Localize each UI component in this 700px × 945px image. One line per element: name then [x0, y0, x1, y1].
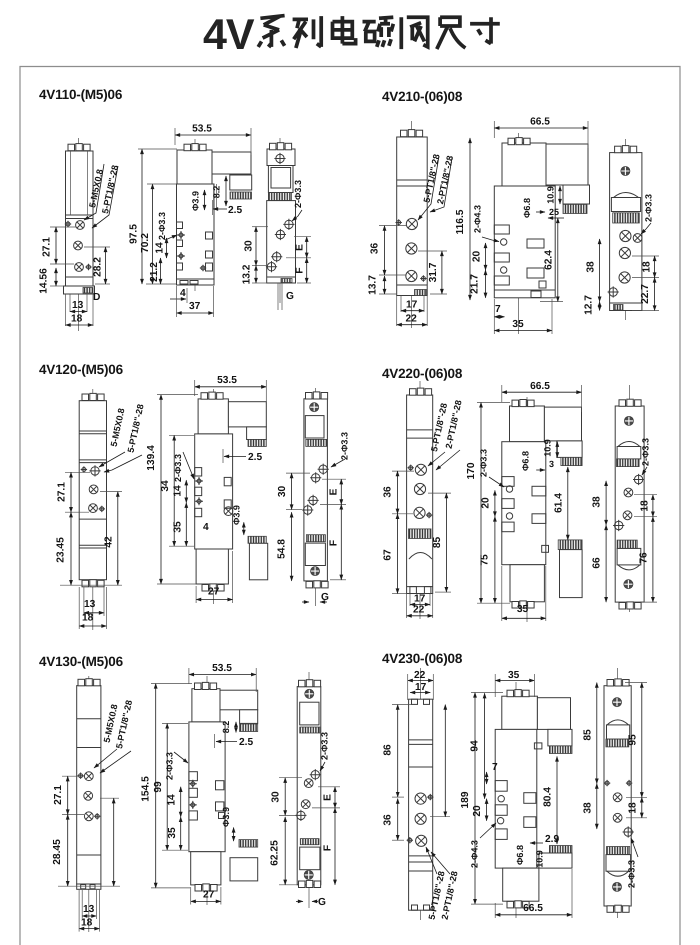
svg-text:66: 66: [592, 557, 603, 569]
svg-text:22: 22: [413, 605, 425, 616]
svg-text:3: 3: [549, 459, 554, 469]
svg-text:17: 17: [414, 594, 426, 605]
svg-text:2-Φ4.3: 2-Φ4.3: [473, 205, 483, 233]
svg-text:4V220-(06)08: 4V220-(06)08: [382, 366, 463, 381]
svg-text:42: 42: [104, 536, 115, 548]
svg-text:E: E: [295, 244, 306, 251]
svg-text:80.4: 80.4: [543, 787, 554, 807]
svg-text:14: 14: [167, 794, 178, 806]
svg-text:85: 85: [583, 729, 594, 741]
svg-text:14: 14: [155, 242, 166, 254]
svg-text:2.5: 2.5: [248, 452, 262, 463]
svg-text:62.4: 62.4: [544, 250, 555, 270]
svg-text:2-Φ3.3: 2-Φ3.3: [641, 438, 651, 466]
svg-text:30: 30: [277, 486, 288, 498]
svg-text:8.2: 8.2: [212, 186, 222, 199]
svg-text:13: 13: [72, 300, 84, 311]
svg-text:66.5: 66.5: [530, 381, 550, 392]
svg-text:27.1: 27.1: [53, 785, 64, 805]
svg-text:10.9: 10.9: [543, 439, 553, 457]
svg-text:2-Φ3.3: 2-Φ3.3: [340, 432, 350, 460]
svg-text:27: 27: [203, 890, 215, 901]
svg-text:170: 170: [466, 462, 477, 479]
svg-text:38: 38: [586, 261, 597, 273]
svg-text:Φ6.8: Φ6.8: [522, 198, 532, 218]
svg-text:54.8: 54.8: [277, 539, 288, 559]
svg-text:7: 7: [495, 304, 501, 315]
svg-text:10.9: 10.9: [535, 850, 545, 868]
svg-text:66.5: 66.5: [523, 903, 543, 914]
svg-text:189: 189: [460, 791, 471, 808]
svg-text:E: E: [323, 794, 334, 801]
svg-text:17: 17: [406, 300, 418, 311]
svg-text:4: 4: [180, 288, 186, 299]
svg-text:18: 18: [640, 500, 651, 512]
svg-text:38: 38: [592, 496, 603, 508]
svg-text:61.4: 61.4: [554, 493, 565, 513]
svg-text:53.5: 53.5: [217, 375, 237, 386]
svg-text:94: 94: [470, 740, 481, 752]
svg-text:139.4: 139.4: [146, 445, 157, 471]
svg-text:67: 67: [383, 549, 394, 561]
svg-text:27.1: 27.1: [42, 237, 53, 257]
svg-text:116.5: 116.5: [455, 209, 466, 234]
svg-text:10.9: 10.9: [546, 186, 556, 204]
svg-text:13: 13: [83, 904, 95, 915]
svg-text:38: 38: [583, 802, 594, 814]
svg-text:86: 86: [383, 744, 394, 756]
svg-text:34: 34: [160, 480, 171, 492]
svg-text:2.5: 2.5: [239, 737, 253, 748]
svg-text:35: 35: [508, 670, 520, 681]
svg-text:30: 30: [271, 791, 282, 803]
svg-text:53.5: 53.5: [212, 663, 232, 674]
svg-text:35: 35: [517, 604, 529, 615]
svg-text:4V130-(M5)06: 4V130-(M5)06: [39, 654, 124, 669]
svg-text:G: G: [321, 592, 329, 603]
svg-text:20: 20: [472, 251, 483, 263]
svg-text:2.9: 2.9: [545, 834, 559, 845]
svg-text:35: 35: [167, 827, 178, 839]
svg-text:62.25: 62.25: [270, 840, 281, 866]
svg-text:20: 20: [472, 805, 483, 817]
svg-text:99: 99: [153, 781, 164, 793]
svg-text:95: 95: [628, 734, 639, 746]
svg-text:20: 20: [481, 497, 492, 509]
svg-text:22: 22: [414, 670, 426, 681]
svg-text:Φ3.9: Φ3.9: [232, 505, 242, 525]
svg-text:22.7: 22.7: [640, 284, 651, 304]
svg-text:2-Φ3.3: 2-Φ3.3: [320, 732, 330, 760]
svg-text:25: 25: [549, 207, 559, 217]
svg-text:12.7: 12.7: [584, 295, 595, 315]
svg-text:36: 36: [383, 814, 394, 826]
svg-text:4V110-(M5)06: 4V110-(M5)06: [39, 87, 123, 102]
svg-text:F: F: [329, 540, 340, 546]
svg-text:Φ6.8: Φ6.8: [515, 845, 525, 865]
svg-text:4: 4: [203, 522, 209, 533]
svg-text:F: F: [323, 845, 334, 851]
svg-text:21.2: 21.2: [149, 262, 160, 282]
svg-text:18: 18: [71, 314, 83, 325]
svg-text:2.5: 2.5: [228, 205, 242, 216]
svg-text:30: 30: [244, 240, 255, 252]
svg-text:18: 18: [628, 802, 639, 814]
svg-text:4V230-(06)08: 4V230-(06)08: [382, 651, 463, 666]
svg-text:27: 27: [208, 587, 220, 598]
svg-text:76: 76: [639, 552, 650, 564]
svg-text:28.2: 28.2: [93, 257, 104, 277]
svg-text:13.2: 13.2: [242, 264, 253, 284]
svg-text:D: D: [93, 292, 100, 303]
svg-text:18: 18: [642, 261, 653, 273]
svg-text:97.5: 97.5: [129, 224, 140, 244]
svg-text:36: 36: [383, 486, 394, 498]
svg-text:13.7: 13.7: [368, 275, 379, 295]
svg-text:66.5: 66.5: [530, 117, 550, 128]
svg-text:17: 17: [415, 682, 427, 693]
svg-text:27.1: 27.1: [57, 482, 68, 502]
svg-text:G: G: [286, 291, 294, 302]
svg-text:2-Φ3.3: 2-Φ3.3: [173, 454, 183, 482]
svg-text:Φ3.9: Φ3.9: [221, 807, 231, 827]
svg-text:22: 22: [406, 314, 418, 325]
svg-text:70.2: 70.2: [140, 233, 151, 253]
svg-text:18: 18: [81, 918, 93, 929]
svg-text:36: 36: [370, 243, 381, 255]
svg-text:4V120-(M5)06: 4V120-(M5)06: [39, 362, 124, 377]
svg-text:13: 13: [84, 599, 96, 610]
svg-text:23.45: 23.45: [56, 537, 67, 563]
svg-text:4V210-(06)08: 4V210-(06)08: [382, 89, 463, 104]
svg-text:2-Φ3.3: 2-Φ3.3: [157, 212, 167, 240]
svg-text:35: 35: [512, 319, 524, 330]
svg-text:31.7: 31.7: [428, 262, 439, 282]
svg-text:2-Φ3.3: 2-Φ3.3: [165, 752, 175, 780]
svg-text:2-Φ3.3: 2-Φ3.3: [644, 194, 654, 222]
svg-text:21.7: 21.7: [470, 274, 481, 294]
svg-text:2-Φ3.3: 2-Φ3.3: [627, 860, 637, 888]
svg-text:2-Φ4.3: 2-Φ4.3: [470, 840, 480, 868]
svg-text:154.5: 154.5: [141, 776, 152, 802]
svg-text:2-Φ3.3: 2-Φ3.3: [293, 180, 303, 208]
svg-text:53.5: 53.5: [192, 124, 212, 135]
svg-text:18: 18: [82, 613, 94, 624]
svg-text:14: 14: [173, 485, 184, 497]
svg-text:14.56: 14.56: [39, 268, 50, 294]
svg-text:2-Φ3.3: 2-Φ3.3: [479, 449, 489, 477]
svg-text:4V: 4V: [203, 11, 255, 59]
svg-text:G: G: [318, 897, 326, 908]
svg-text:28.45: 28.45: [52, 839, 63, 865]
svg-text:37: 37: [189, 301, 201, 312]
svg-text:35: 35: [173, 521, 184, 533]
svg-text:Φ6.8: Φ6.8: [521, 451, 531, 471]
svg-text:8.2: 8.2: [221, 721, 231, 734]
svg-text:85: 85: [432, 537, 443, 549]
svg-text:7: 7: [492, 762, 498, 773]
svg-text:F: F: [295, 267, 306, 273]
svg-text:E: E: [329, 488, 340, 495]
svg-text:Φ3.9: Φ3.9: [191, 191, 201, 211]
